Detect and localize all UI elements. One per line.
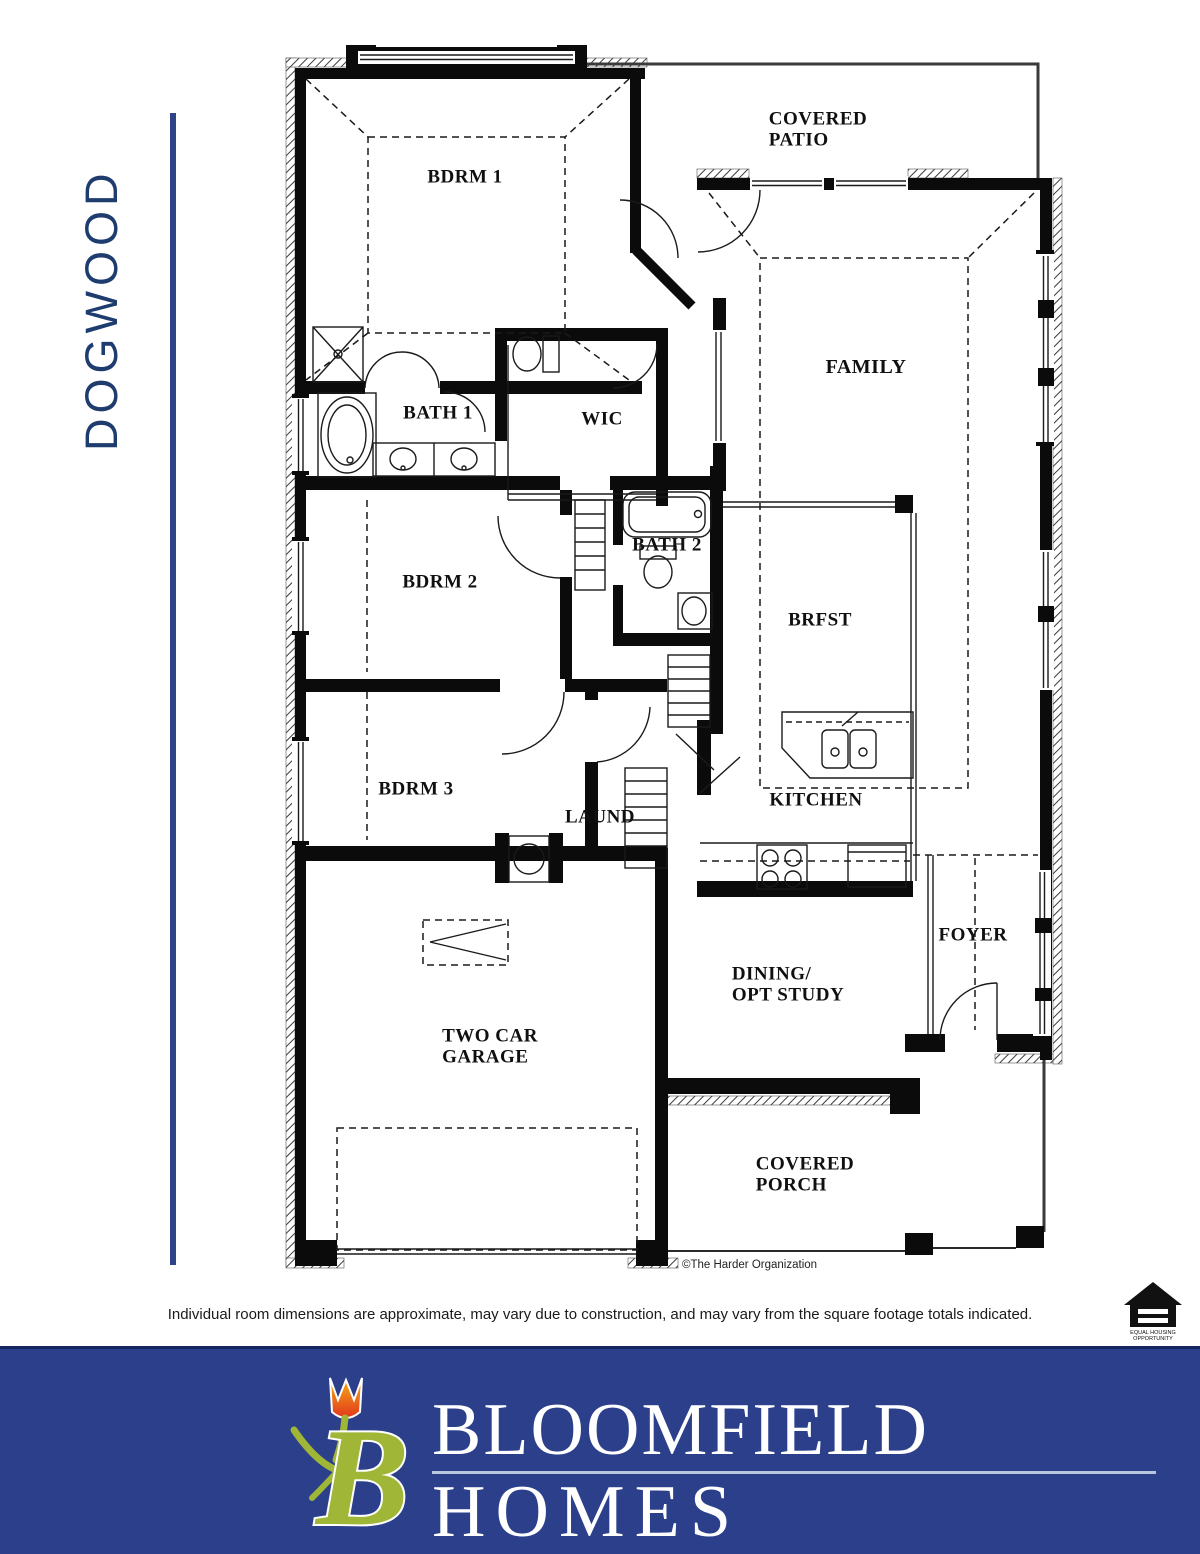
brand-name-line2: HOMES (432, 1470, 741, 1554)
room-label-kitchen: KITCHEN (769, 791, 862, 812)
dashed-lines (306, 79, 1038, 1250)
window-mullions (292, 250, 1054, 1001)
room-label-bdrm-3: BDRM 3 (378, 780, 453, 801)
svg-text:OPPORTUNITY: OPPORTUNITY (1133, 1336, 1173, 1342)
room-label-covered-patio: COVERED PATIO (769, 109, 868, 150)
room-label-bdrm-2: BDRM 2 (402, 573, 477, 594)
room-label-bath-2: BATH 2 (632, 536, 702, 557)
brand-name-line1: BLOOMFIELD (432, 1388, 929, 1473)
room-label-bath-1: BATH 1 (403, 404, 473, 425)
equal-housing-icon: EQUAL HOUSING OPPORTUNITY (1120, 1280, 1186, 1342)
room-label-wic: WIC (581, 410, 623, 431)
room-label-laund: LAUND (565, 808, 635, 829)
copyright-text: ©The Harder Organization (682, 1259, 817, 1271)
plan-name-vertical: DOGWOOD (76, 106, 128, 451)
room-label-brfst: BRFST (788, 611, 852, 632)
room-label-covered-porch: COVERED PORCH (756, 1154, 855, 1195)
room-label-dining-opt-study: DINING/ OPT STUDY (732, 964, 844, 1005)
room-label-foyer: FOYER (939, 926, 1008, 947)
bloomfield-logo: B (286, 1372, 438, 1550)
title-divider-line (170, 113, 176, 1265)
porch-beams (668, 1248, 1016, 1251)
disclaimer-text: Individual room dimensions are approxima… (0, 1306, 1200, 1323)
flyer-page: DOGWOOD (0, 0, 1200, 1554)
floor-plan-drawing (283, 30, 1073, 1290)
vestibule-diagonal-wall (636, 250, 692, 306)
room-label-two-car-garage: TWO CAR GARAGE (442, 1026, 538, 1067)
room-label-bdrm-1: BDRM 1 (427, 168, 502, 189)
room-label-family: FAMILY (826, 357, 907, 379)
patio-roof-lines (583, 64, 1044, 1232)
logo-b: B (314, 1400, 409, 1550)
